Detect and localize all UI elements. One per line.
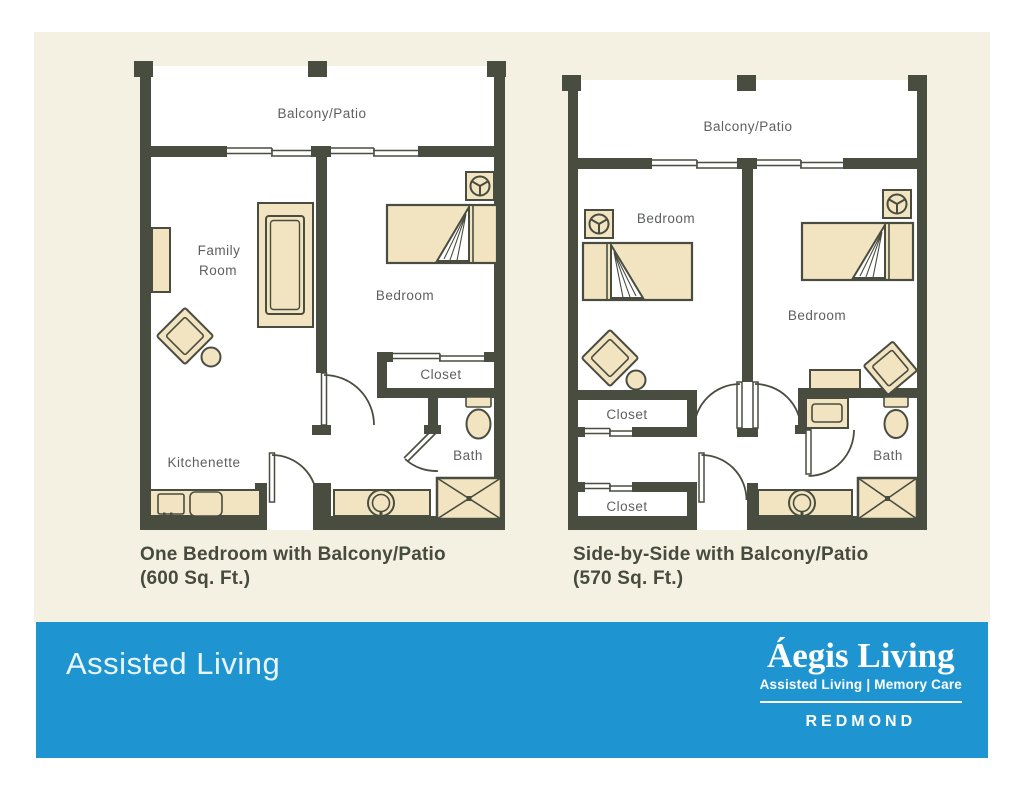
balcony-wall: [568, 158, 927, 169]
closet-top-label: Closet: [606, 407, 647, 422]
closet-bottom-label: Closet: [606, 499, 647, 514]
round-table: [202, 348, 221, 367]
entry-door-leaf: [699, 453, 704, 502]
brand-location: REDMOND: [760, 713, 962, 731]
bedroom-label: Bedroom: [376, 288, 434, 303]
ceiling-fan-icon: [883, 190, 911, 218]
brand-banner: Assisted Living Áegis Living Assisted Li…: [36, 622, 988, 758]
bedroom-right-label: Bedroom: [788, 308, 846, 323]
plan1-caption-line1: One Bedroom with Balcony/Patio: [140, 544, 446, 565]
shower: [437, 478, 501, 519]
plan2-caption-line1: Side-by-Side with Balcony/Patio: [573, 544, 868, 565]
kitchenette-counter: [150, 490, 260, 519]
bed-right: [802, 223, 913, 280]
entry-door-leaf: [270, 453, 275, 502]
side-table: [152, 228, 170, 292]
bedroom-left-label: Bedroom: [637, 211, 695, 226]
closet-label: Closet: [420, 367, 461, 382]
brand-name: Áegis Living: [760, 636, 962, 676]
balcony-label: Balcony/Patio: [277, 106, 366, 121]
round-table: [627, 371, 646, 390]
bedroom-door-leaf: [322, 373, 327, 425]
kitchen-appliance: [190, 492, 222, 516]
plan1-caption-line2: (600 Sq. Ft.): [140, 568, 250, 589]
wall-sink: [806, 398, 848, 428]
logo-divider: [760, 701, 962, 703]
brand-tagline: Assisted Living | Memory Care: [760, 677, 962, 692]
hall-door-left-leaf: [737, 382, 742, 428]
balcony-label: Balcony/Patio: [703, 119, 792, 134]
hall-door-right-leaf: [753, 382, 758, 428]
toilet: [884, 397, 908, 438]
shower: [858, 478, 917, 519]
vanity-sink: [334, 490, 430, 518]
bed: [387, 205, 497, 263]
plan2-caption-line2: (570 Sq. Ft.): [573, 568, 683, 589]
care-type-title: Assisted Living: [66, 646, 280, 758]
family-room-label-2: Room: [199, 263, 237, 278]
toilet: [466, 397, 491, 439]
bath-door-leaf: [806, 430, 811, 474]
floorplan-one-bedroom: Balcony/Patio Family Room Bedroom Closet…: [134, 61, 506, 589]
bed-left: [583, 243, 692, 300]
flyer-page: Balcony/Patio Family Room Bedroom Closet…: [0, 0, 1024, 791]
ceiling-fan-icon: [585, 210, 613, 238]
ceiling-fan-icon: [466, 172, 494, 200]
floorplan-side-by-side: Balcony/Patio Bedroom Bedroom Closet Clo…: [562, 75, 927, 589]
dresser: [810, 370, 860, 389]
bath-label: Bath: [453, 448, 483, 463]
kitchen-sink: [158, 494, 184, 514]
family-room-label-1: Family: [198, 243, 241, 258]
aegis-living-logo: Áegis Living Assisted Living | Memory Ca…: [760, 636, 962, 758]
couch: [258, 203, 313, 327]
kitchenette-label: Kitchenette: [167, 455, 240, 470]
bath-label: Bath: [873, 448, 903, 463]
vanity-sink: [758, 490, 852, 518]
